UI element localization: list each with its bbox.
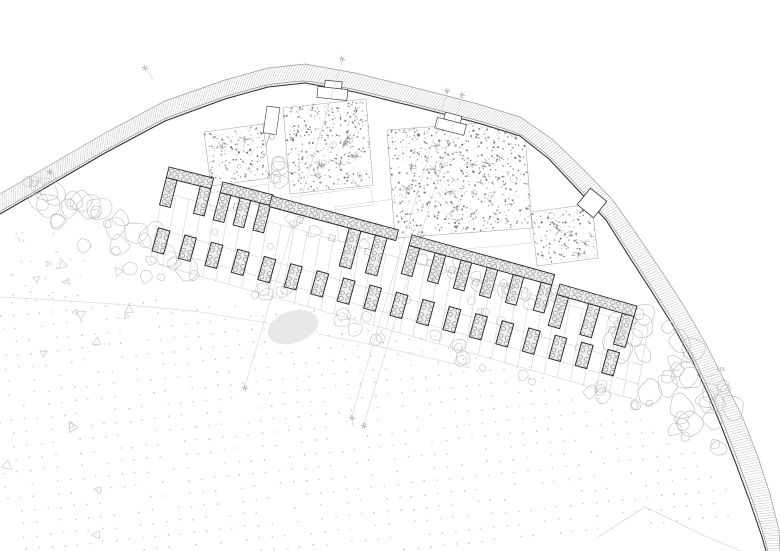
grove: [269, 156, 289, 188]
building-module: [160, 167, 214, 216]
stone-pier: [522, 328, 540, 354]
site-plan-stage: +15: [0, 0, 780, 551]
stone-pier: [390, 292, 408, 318]
rock-triangles: [2, 260, 134, 539]
stone-pier: [364, 285, 382, 311]
site-plan-drawing: [0, 0, 780, 551]
stone-pier: [178, 235, 196, 261]
stone-pier: [152, 228, 170, 254]
garden-plot: [283, 99, 373, 194]
gate-knob: [270, 135, 275, 140]
lower-row-trees: [141, 257, 653, 410]
elevation-label: +15: [716, 368, 725, 373]
stone-pier: [575, 342, 593, 368]
stone-pier: [258, 256, 276, 282]
stone-pier: [602, 349, 620, 375]
stone-pier: [443, 306, 461, 332]
ground-paths: [0, 297, 741, 551]
ground-specks: [11, 232, 91, 302]
garden-plot: [204, 123, 270, 186]
garden-plots: [204, 99, 598, 266]
stone-pier: [469, 314, 487, 340]
lamps: [47, 56, 466, 430]
stone-pier: [549, 335, 567, 361]
garden-plot: [387, 120, 532, 238]
building-module: [213, 182, 273, 233]
stone-pier: [417, 299, 435, 325]
stone-pier: [231, 249, 249, 275]
stone-pier: [205, 242, 223, 268]
